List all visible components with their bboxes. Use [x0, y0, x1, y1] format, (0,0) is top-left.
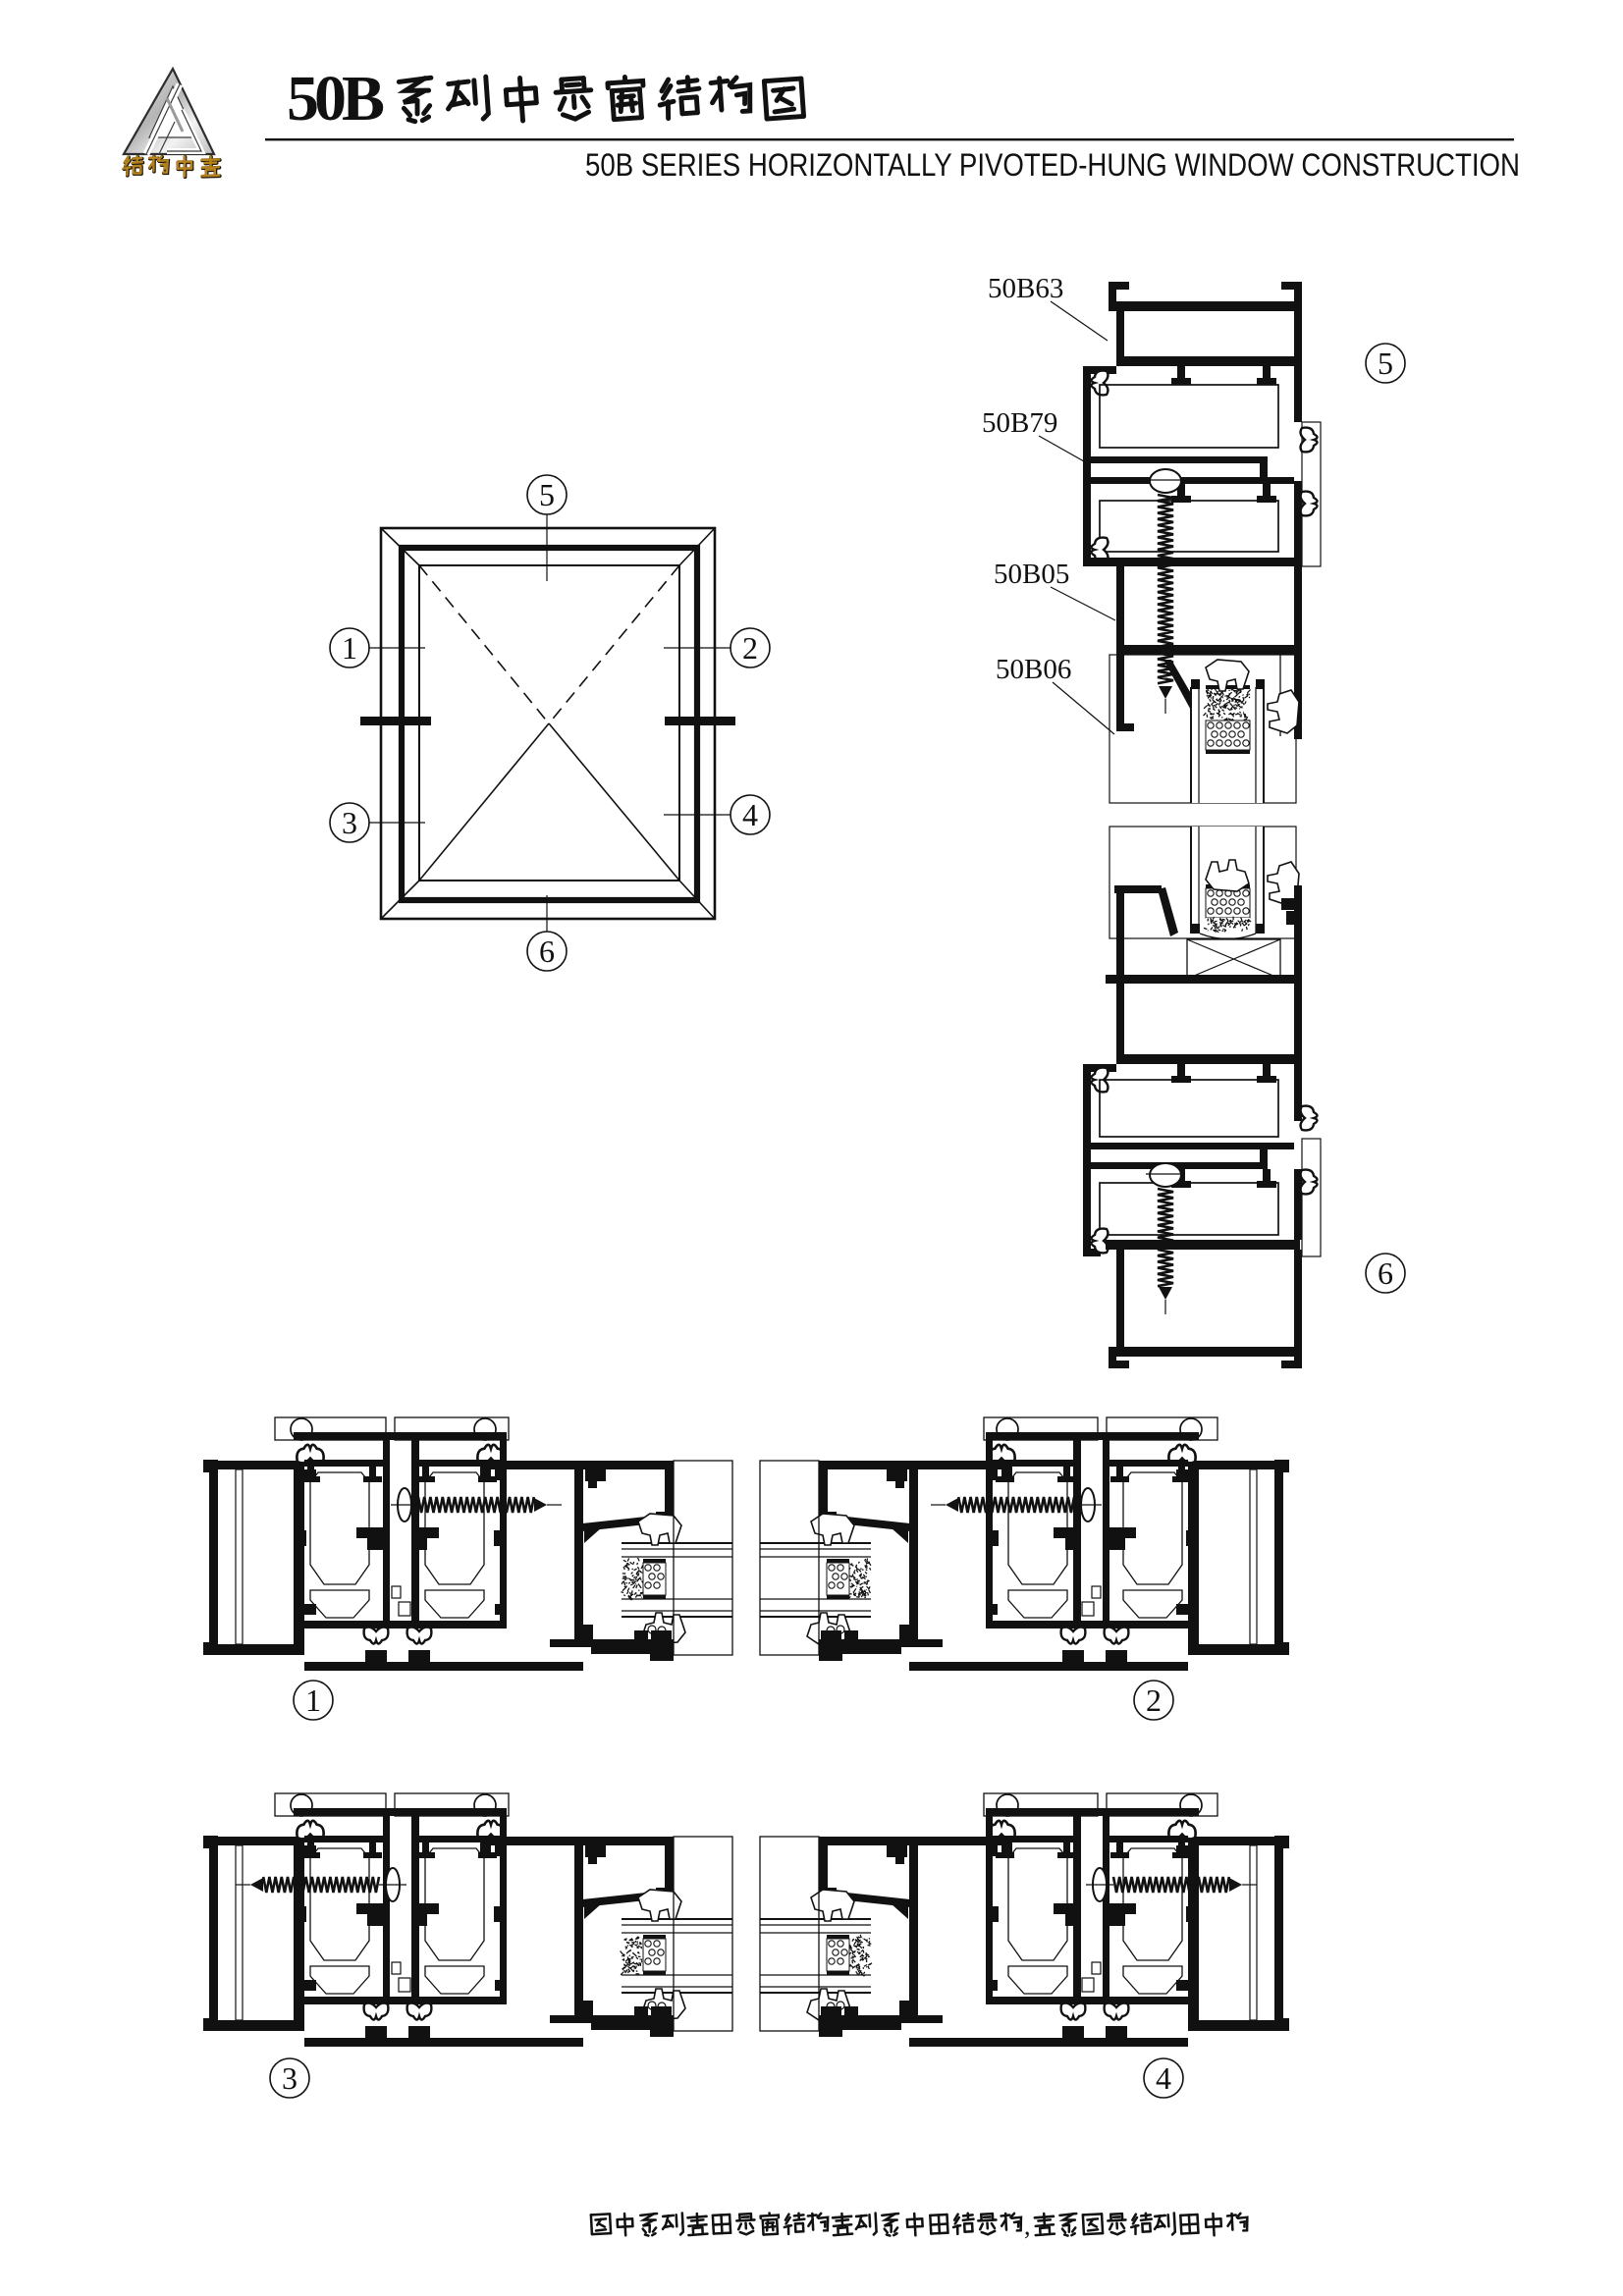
svg-text:50B79: 50B79 [982, 407, 1057, 439]
svg-text:50B05: 50B05 [994, 559, 1069, 590]
svg-text:2: 2 [742, 630, 758, 666]
svg-text:1: 1 [305, 1682, 321, 1718]
svg-text:2: 2 [1146, 1682, 1162, 1718]
svg-text:50B06: 50B06 [996, 654, 1071, 685]
svg-text:,: , [1024, 2212, 1031, 2240]
svg-text:1: 1 [342, 630, 357, 666]
svg-text:50B: 50B [287, 63, 385, 134]
svg-text:50B63: 50B63 [988, 273, 1063, 304]
svg-text:4: 4 [742, 797, 758, 832]
svg-text:5: 5 [1378, 346, 1393, 381]
svg-text:6: 6 [1378, 1255, 1393, 1291]
svg-text:6: 6 [539, 934, 555, 969]
svg-text:5: 5 [539, 477, 555, 512]
svg-text:3: 3 [342, 805, 357, 840]
svg-text:4: 4 [1156, 2060, 1171, 2096]
svg-text:50B SERIES HORIZONTALLY PIVOT: 50B SERIES HORIZONTALLY PIVOTED-HUNG WIN… [585, 147, 1520, 183]
svg-text:3: 3 [282, 2060, 298, 2096]
